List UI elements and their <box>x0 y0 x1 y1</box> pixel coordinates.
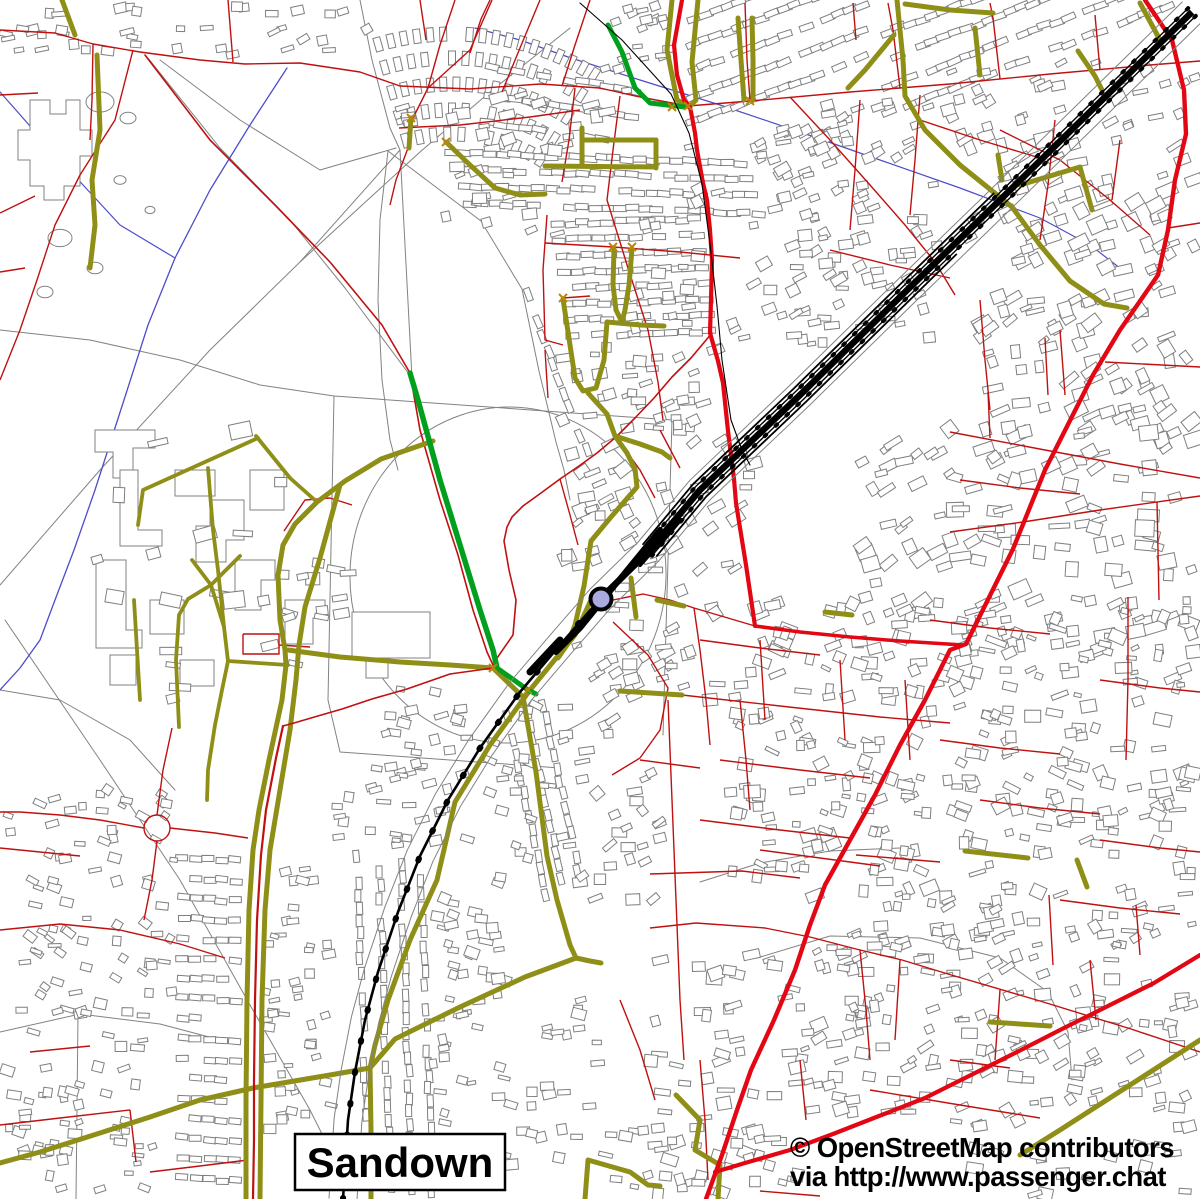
svg-text:Sandown: Sandown <box>307 1139 494 1186</box>
svg-text:© OpenStreetMap contributors: © OpenStreetMap contributors <box>790 1132 1174 1163</box>
svg-text:via http://www.passenger.chat: via http://www.passenger.chat <box>790 1161 1166 1192</box>
